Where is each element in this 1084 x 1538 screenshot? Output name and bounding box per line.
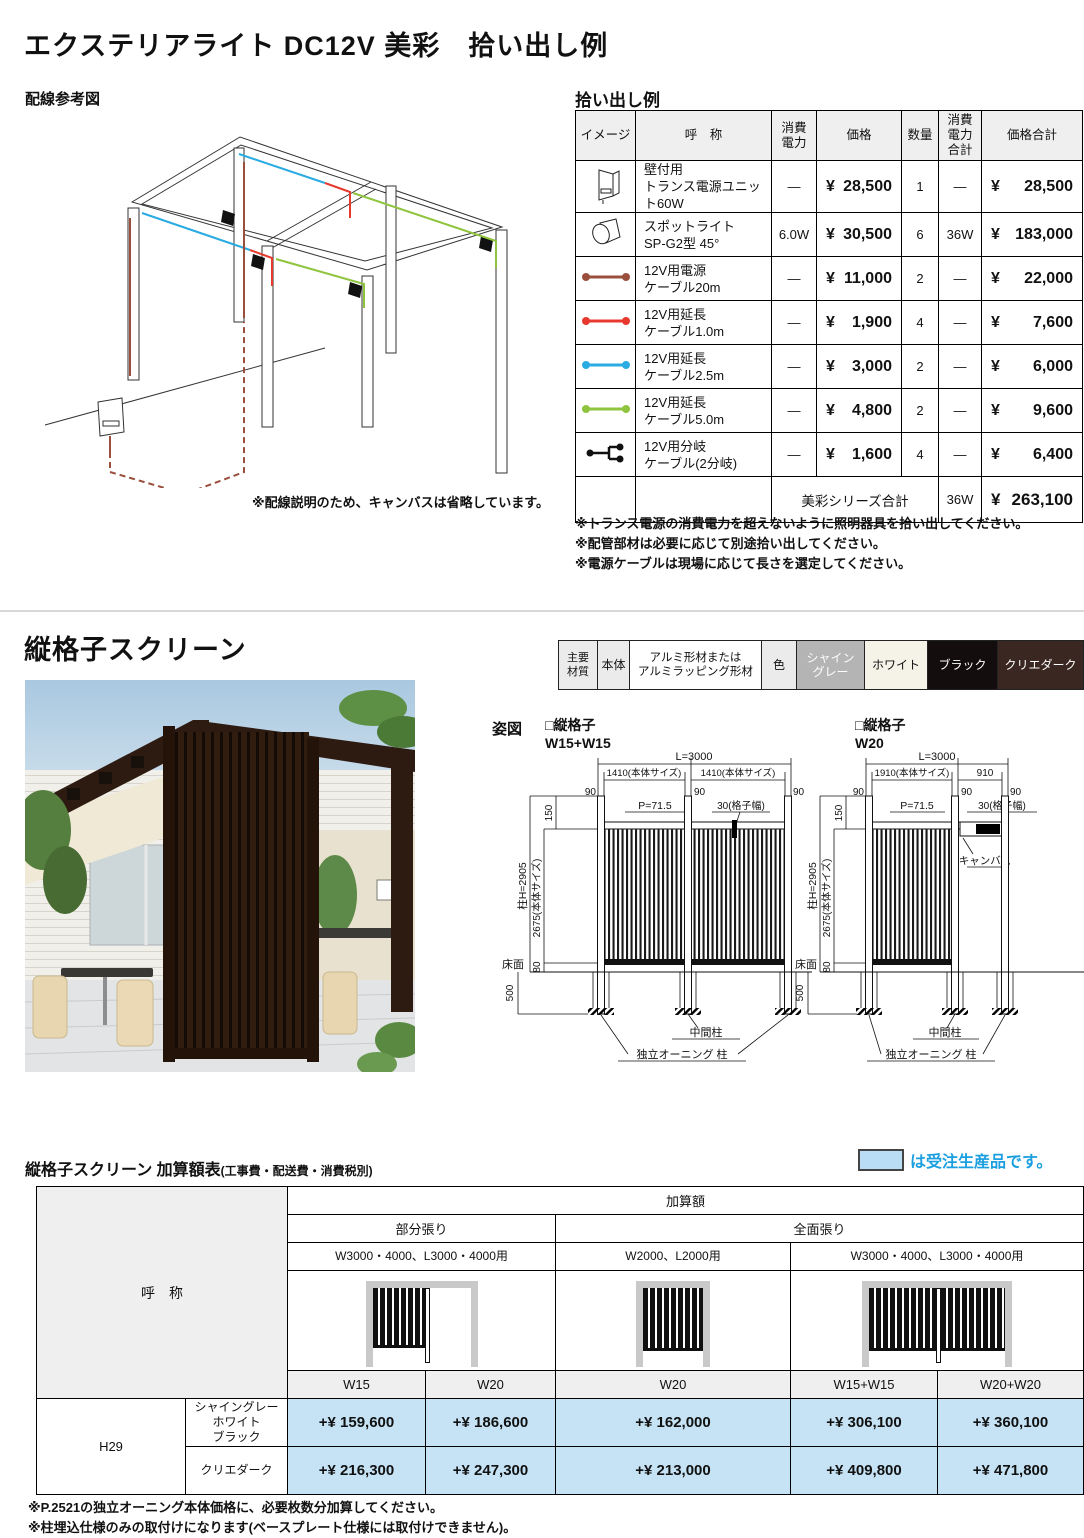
vertical-slat-screen [173,732,309,1054]
yen: ¥ [826,270,835,288]
floor-label: 床面 [502,957,524,971]
item-name: 壁付用 トランス電源ユニット60W [636,161,772,213]
yen: ¥ [991,490,1000,510]
wiring-heading: 配線参考図 [25,88,100,109]
item-qty: 2 [902,257,939,301]
price-cell: +¥ 213,000 [556,1447,791,1495]
yen: ¥ [826,402,835,420]
material-color-bar: 主要 材質 本体 アルミ形材または アルミラッピング形材 色 シャイン グレー … [558,640,1084,690]
material-head: 主要 材質 [558,640,598,690]
item-watt: — [772,345,817,389]
branch-cable-icon [582,442,630,464]
price-cell: +¥ 159,600 [288,1399,426,1447]
kasangaku-header: 加算額 [288,1187,1084,1215]
color-chip-shine-gray: シャイン グレー [797,640,865,690]
pickup-notes: ※トランス電源の消費電力を超えないように照明器具を拾い出してください。 ※配管部… [575,514,1075,574]
note-line: ※配管部材は必要に応じて別途拾い出してください。 [575,534,1075,554]
price-cell: +¥ 247,300 [426,1447,556,1495]
yen: ¥ [826,226,835,244]
col-qty: 数量 [902,111,939,161]
series-total-price: 263,100 [1012,490,1073,510]
price: 11,000 [844,270,892,288]
yen: ¥ [991,178,1000,196]
price: 1,900 [852,314,892,332]
size-label: W15 [288,1371,426,1399]
dim-slat-width: 30(格子幅) [717,799,765,812]
pickup-table: イメージ 呼 称 消費 電力 価格 数量 消費 電力 合計 価格合計 壁付用 ト… [575,110,1083,523]
price-cell: +¥ 216,300 [288,1447,426,1495]
thumbnail-full-w20 [636,1281,710,1367]
dim-body-height: 2675(本体サイズ) [530,859,543,938]
table-row: 12V用延長 ケーブル5.0m — ¥4,800 2 — ¥9,600 [576,389,1083,433]
dim-L: L=3000 [675,751,712,763]
note-line: ※柱埋込仕様のみの取付けになります(ベースプレート仕様には取付けできません)。 [28,1518,828,1538]
diagram-size: W15+W15 [545,735,611,751]
ext-cable-icon [580,358,632,372]
yen: ¥ [991,358,1000,376]
price-total: 6,000 [1033,358,1073,376]
color-head: 色 [762,640,797,690]
wall-transformer-unit [98,398,124,452]
size-label: W15+W15 [791,1371,938,1399]
item-name: 12V用分岐 ケーブル(2分岐) [636,433,772,477]
screen-bottom-rail [163,1048,319,1059]
ground-line [45,348,325,425]
dim-body-height: 2675(本体サイズ) [820,859,833,938]
item-watt-sum: — [939,389,982,433]
floor-label: 床面 [795,957,817,971]
size-label: W20 [556,1371,791,1399]
diagram-size: W20 [855,735,884,751]
item-watt-sum: — [939,161,982,213]
item-watt: — [772,433,817,477]
item-watt-sum: — [939,345,982,389]
wiring-diagram [20,118,560,488]
item-qty: 2 [902,345,939,389]
item-name: 12V用電源 ケーブル20m [636,257,772,301]
dim-90: 90 [961,787,973,798]
col-price: 価格 [817,111,902,161]
price-total: 9,600 [1033,402,1073,420]
table-row: 12V用延長 ケーブル2.5m — ¥3,000 2 — ¥6,000 [576,345,1083,389]
price-total: 7,600 [1033,314,1073,332]
dim-80: 80 [822,961,833,973]
ext-cable-icon [580,314,632,328]
item-watt: 6.0W [772,213,817,257]
table-row: 壁付用 トランス電源ユニット60W — ¥28,500 1 — ¥28,500 [576,161,1083,213]
price-cell: +¥ 186,600 [426,1399,556,1447]
made-to-order-legend: は受注生産品です。 [858,1148,1052,1172]
col-price-total: 価格合計 [982,111,1083,161]
dim-150: 150 [834,804,845,821]
item-watt-sum: 36W [939,213,982,257]
use-size-2: W2000、L2000用 [556,1243,791,1271]
color-group-label: シャイングレー ホワイト ブラック [186,1399,288,1447]
section-divider [0,610,1084,612]
screen-left-stile [163,726,175,1062]
yen: ¥ [991,226,1000,244]
spotlight-icon [586,215,626,251]
dim-body2: 1410(本体サイズ) [701,767,776,779]
pergola-posts [128,148,507,473]
table-row: 12V用分岐 ケーブル(2分岐) — ¥1,600 4 — ¥6,400 [576,433,1083,477]
power-cable-icon [580,270,632,284]
note-line: ※P.2521の独立オーニング本体価格に、必要枚数分加算してください。 [28,1498,828,1518]
price-cell: +¥ 409,800 [791,1447,938,1495]
middle-post-label: 中間柱 [690,1025,723,1039]
table-row: 12V用電源 ケーブル20m — ¥11,000 2 — ¥22,000 [576,257,1083,301]
lattice-panel [604,829,785,959]
item-qty: 4 [902,301,939,345]
dim-pitch: P=71.5 [900,800,934,812]
yen: ¥ [991,270,1000,288]
dim-500: 500 [505,984,516,1001]
color-chip-white: ホワイト [865,640,928,690]
pickup-heading: 拾い出し例 [575,86,660,111]
diagram-title: □縦格子 [545,717,595,733]
item-name: スポットライト SP-G2型 45° [636,213,772,257]
addition-title-main: 縦格子スクリーン 加算額表 [25,1162,221,1179]
price-total: 183,000 [1015,226,1073,244]
addition-title-sub: (工事費・配送費・消費税別) [221,1164,373,1178]
price: 4,800 [852,402,892,420]
item-watt-sum: — [939,257,982,301]
order-color-swatch [858,1149,904,1171]
note-line: ※電源ケーブルは現場に応じて長さを選定してください。 [575,554,1075,574]
diagram-w15w15: □縦格子 W15+W15 L=3000 1410(本体サイズ) 1410(本体サ… [500,716,812,1068]
yen: ¥ [991,402,1000,420]
item-qty: 2 [902,389,939,433]
ext-cable-icon [580,402,632,416]
thumbnail-full-wide [862,1281,1012,1367]
price: 3,000 [852,358,892,376]
kosho-header: 呼 称 [37,1187,288,1399]
price: 1,600 [852,446,892,464]
item-qty: 4 [902,433,939,477]
col-image: イメージ [576,111,636,161]
price-total: 6,400 [1033,446,1073,464]
awning-post-label: 独立オーニング 柱 [636,1047,727,1061]
col-name: 呼 称 [636,111,772,161]
item-watt: — [772,257,817,301]
lattice-panel [872,829,952,959]
size-label: W20+W20 [938,1371,1084,1399]
yen: ¥ [826,178,835,196]
pergola-right-post [391,760,413,1012]
dim-80: 80 [532,961,543,973]
legend-text: は受注生産品です。 [910,1148,1052,1172]
dim-500: 500 [795,984,806,1001]
addition-table-notes: ※P.2521の独立オーニング本体価格に、必要枚数分加算してください。 ※柱埋込… [28,1498,828,1538]
dim-body1: 1910(本体サイズ) [875,767,950,779]
use-size-3: W3000・4000、L3000・4000用 [791,1243,1084,1271]
dim-post-height: 柱H=2905 [806,862,819,910]
partial-header: 部分張り [288,1215,556,1243]
dim-post-height: 柱H=2905 [516,862,529,910]
full-header: 全面張り [556,1215,1084,1243]
price-cell: +¥ 360,100 [938,1399,1084,1447]
price: 30,500 [843,226,892,244]
color-chip-black: ブラック [928,640,998,690]
yen: ¥ [826,446,835,464]
item-qty: 1 [902,161,939,213]
dim-body1: 1410(本体サイズ) [607,767,682,779]
dim-90: 90 [694,787,706,798]
section-title: 縦格子スクリーン [24,628,247,667]
dim-90: 90 [1010,787,1022,798]
table-row: 12V用延長 ケーブル1.0m — ¥1,900 4 — ¥7,600 [576,301,1083,345]
cable-green [353,193,496,268]
use-size-1: W3000・4000、L3000・4000用 [288,1243,556,1271]
col-watt-total: 消費 電力 合計 [939,111,982,161]
item-watt-sum: — [939,301,982,345]
diagram-w20: □縦格子 W20 L=3000 1910(本体サイズ) 910 90 90 90… [795,716,1084,1068]
yen: ¥ [826,358,835,376]
price-cell: +¥ 471,800 [938,1447,1084,1495]
col-watt: 消費 電力 [772,111,817,161]
note-line: ※トランス電源の消費電力を超えないように照明器具を拾い出してください。 [575,514,1075,534]
price-cell: +¥ 306,100 [791,1399,938,1447]
item-name: 12V用延長 ケーブル5.0m [636,389,772,433]
addition-price-table: 呼 称 加算額 部分張り 全面張り W3000・4000、L3000・4000用… [36,1186,1084,1495]
size-label: W20 [426,1371,556,1399]
h29-label: H29 [37,1399,186,1495]
item-watt: — [772,161,817,213]
item-qty: 6 [902,213,939,257]
item-watt-sum: — [939,433,982,477]
color-group-label: クリエダーク [186,1447,288,1495]
price-cell: +¥ 162,000 [556,1399,791,1447]
price-total: 28,500 [1024,178,1073,196]
wall-transformer-icon [586,165,626,205]
dim-150: 150 [544,804,555,821]
item-watt: — [772,301,817,345]
addition-table-title: 縦格子スクリーン 加算額表(工事費・配送費・消費税別) [25,1156,373,1180]
price-row: H29 シャイングレー ホワイト ブラック +¥ 159,600 +¥ 186,… [37,1399,1084,1447]
wiring-caption: ※配線説明のため、キャンバスは省略しています。 [252,492,552,511]
yen: ¥ [991,314,1000,332]
color-chip-crie-dark: クリエダーク [998,640,1084,690]
awning-post-label: 独立オーニング 柱 [885,1047,976,1061]
price: 28,500 [843,178,892,196]
diagram-title: □縦格子 [855,717,905,733]
middle-post-label: 中間柱 [929,1025,962,1039]
price-total: 22,000 [1024,270,1073,288]
dim-L: L=3000 [918,751,955,763]
dim-pitch: P=71.5 [638,800,672,812]
price-row: クリエダーク +¥ 216,300 +¥ 247,300 +¥ 213,000 … [37,1447,1084,1495]
material-body-label: 本体 [598,640,630,690]
screen-right-stile [307,738,319,1062]
yen: ¥ [826,314,835,332]
yen: ¥ [991,446,1000,464]
table-row: スポットライト SP-G2型 45° 6.0W ¥30,500 6 36W ¥1… [576,213,1083,257]
item-name: 12V用延長 ケーブル1.0m [636,301,772,345]
thumbnail-partial [366,1281,478,1367]
material-value: アルミ形材または アルミラッピング形材 [630,640,762,690]
item-watt: — [772,389,817,433]
item-name: 12V用延長 ケーブル2.5m [636,345,772,389]
dim-910: 910 [977,768,994,779]
page-title: エクステリアライト DC12V 美彩 拾い出し例 [24,24,608,63]
product-photo [25,680,415,1072]
